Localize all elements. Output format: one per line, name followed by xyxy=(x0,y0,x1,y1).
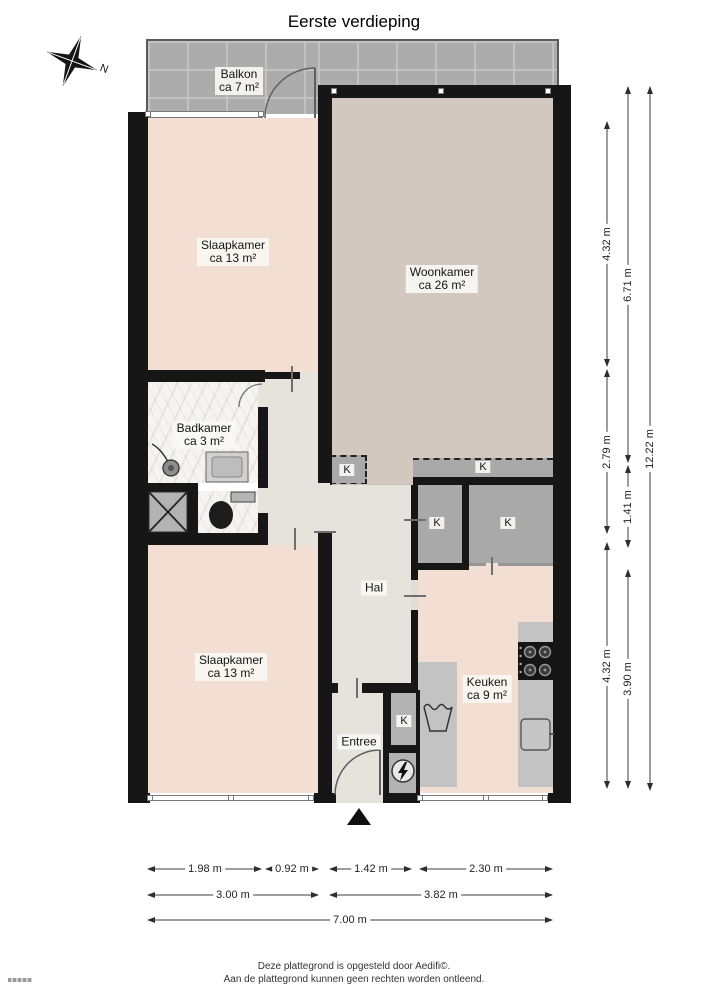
floorplan-page: Eerste verdieping xyxy=(0,0,708,1000)
wall-bath-right-a xyxy=(258,407,268,488)
dim-label: 0.92 m xyxy=(272,863,312,875)
wall-under-left-closet xyxy=(411,563,469,570)
window-tick xyxy=(542,795,548,801)
window-tick xyxy=(438,88,444,94)
dim-label: 7.00 m xyxy=(330,914,370,926)
wall-under-wide-closet xyxy=(413,477,553,485)
wall-bottom-d xyxy=(548,793,571,803)
room-label-slaapkamer-2: Slaapkamer ca 13 m² xyxy=(195,653,267,681)
window-tick xyxy=(145,111,151,117)
window-balcony xyxy=(148,111,263,118)
wall-closets-left xyxy=(411,485,418,563)
closet-label: K xyxy=(429,517,444,529)
wall-bath-right-b xyxy=(258,513,268,535)
window-tick xyxy=(545,88,551,94)
wc-floor xyxy=(198,491,260,533)
dim-label: 4.32 m xyxy=(601,224,613,264)
compass-icon xyxy=(37,26,106,95)
dim-label: 1.41 m xyxy=(622,487,634,527)
footer-line-1: Deze plattegrond is opgesteld door Aedif… xyxy=(0,961,708,974)
wall-kitchen-thin-left xyxy=(416,690,420,793)
dim-label: 2.30 m xyxy=(466,863,506,875)
dim-label: 6.71 m xyxy=(622,265,634,305)
dim-label: 4.32 m xyxy=(601,646,613,686)
wall-wc-bottom xyxy=(148,533,268,545)
window-tick xyxy=(258,111,264,117)
window-tick xyxy=(483,795,489,801)
dim-label: 3.00 m xyxy=(213,889,253,901)
window-tick xyxy=(308,795,314,801)
room-label-entree: Entree xyxy=(337,735,380,750)
closet-right-bottom-line xyxy=(469,563,553,566)
wall-living-top xyxy=(318,85,571,98)
wall-mid-lower xyxy=(318,533,332,797)
room-label-balkon: Balkon ca 7 m² xyxy=(215,67,263,95)
dim-label: 2.79 m xyxy=(601,432,613,472)
wall-bottom-b xyxy=(314,793,336,803)
room-label-badkamer: Badkamer ca 3 m² xyxy=(173,421,236,449)
wc-door-opening xyxy=(258,488,268,513)
shaft-floor xyxy=(148,491,188,533)
door-tick-closet-right xyxy=(491,557,493,575)
door-tick-entree xyxy=(356,678,358,698)
door-tick-closet-left xyxy=(404,519,426,521)
balcony-floor-right xyxy=(318,39,559,87)
footer-line-2: Aan de plattegrond kunnen geen rechten w… xyxy=(0,974,708,987)
wall-hall-kitchen-b xyxy=(411,610,418,690)
bathroom-door-opening xyxy=(258,382,268,407)
wall-entree-closet-bottom xyxy=(383,745,418,753)
page-title: Eerste verdieping xyxy=(0,12,708,32)
room-label-slaapkamer-1: Slaapkamer ca 13 m² xyxy=(197,238,269,266)
entrance-marker xyxy=(347,808,371,825)
room-label-keuken: Keuken ca 9 m² xyxy=(463,675,512,703)
door-tick-kitchen xyxy=(404,595,426,597)
dim-label: 1.98 m xyxy=(185,863,225,875)
hall-floor-upper xyxy=(265,372,318,545)
door-tick-bedroom2 xyxy=(294,528,296,550)
wall-shaft-right xyxy=(188,488,198,535)
closet-label: K xyxy=(475,461,490,473)
window-tick xyxy=(331,88,337,94)
wall-mid-upper xyxy=(318,98,332,483)
footer-disclaimer: Deze plattegrond is opgesteld door Aedif… xyxy=(0,961,708,986)
wall-bottom-c xyxy=(383,793,420,803)
kitchen-laundry-block xyxy=(418,662,457,787)
dim-label: 3.90 m xyxy=(622,659,634,699)
compass-north-label: N xyxy=(98,62,110,76)
door-tick-passage xyxy=(314,531,336,533)
closet-label: K xyxy=(500,517,515,529)
wall-bath-top-thin xyxy=(265,372,300,379)
window-tick xyxy=(147,795,153,801)
wall-outer-left xyxy=(128,112,148,803)
wall-closets-divider xyxy=(462,485,469,563)
meter-cupboard xyxy=(389,753,416,793)
dim-label: 12.22 m xyxy=(644,426,656,472)
hall-passage xyxy=(318,483,332,533)
closet-label: K xyxy=(339,464,354,476)
wall-entree-closet-left xyxy=(383,688,391,753)
entree-door-opening xyxy=(338,683,362,693)
wall-entree-top-a xyxy=(332,683,338,693)
room-label-woonkamer: Woonkamer ca 26 m² xyxy=(406,265,478,293)
wall-bath-top xyxy=(148,370,265,382)
window-tick xyxy=(228,795,234,801)
wall-meter-left xyxy=(383,753,389,797)
wall-outer-right xyxy=(553,85,571,803)
closet-label: K xyxy=(396,715,411,727)
window-tick xyxy=(417,795,423,801)
room-label-hal: Hal xyxy=(361,581,387,596)
living-hall-threshold xyxy=(332,484,411,485)
dim-label: 3.82 m xyxy=(421,889,461,901)
wall-hall-kitchen-a xyxy=(411,570,418,580)
kitchen-counter xyxy=(518,622,553,787)
door-tick-bedroom1 xyxy=(291,366,293,392)
frontdoor-opening xyxy=(336,793,383,803)
dim-label: 1.42 m xyxy=(351,863,391,875)
